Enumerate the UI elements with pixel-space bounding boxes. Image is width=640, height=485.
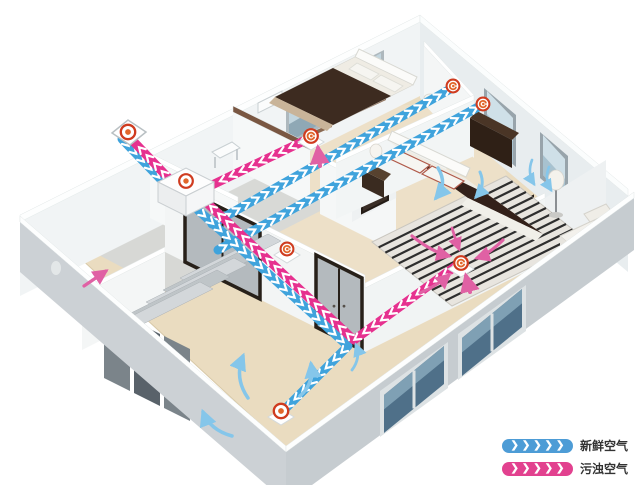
fresh-air-swatch: ❯❯❯❯❯: [502, 439, 573, 453]
legend-item-fresh-air: ❯❯❯❯❯ 新鲜空气: [502, 437, 628, 454]
exhaust-air-swatch: ❯❯❯❯❯: [502, 462, 573, 476]
hallway-exhaust-vent-icon: [281, 243, 294, 256]
bedroom1-supply-vent-icon: [447, 80, 460, 93]
legend: ❯❯❯❯❯ 新鲜空气 ❯❯❯❯❯ 污浊空气: [502, 437, 628, 477]
bulkhead-exhaust-vent-icon: [304, 129, 318, 143]
outdoor-intake-exhaust-vent-icon: [121, 125, 135, 139]
ventilation-diagram: ❯❯❯❯❯ 新鲜空气 ❯❯❯❯❯ 污浊空气: [0, 0, 640, 485]
exhaust-air-label: 污浊空气: [580, 460, 628, 477]
bedroom2-supply-vent-icon: [477, 98, 490, 111]
house-cutaway-illustration: [0, 0, 640, 485]
heat-recovery-unit-vent-icon: [179, 174, 193, 188]
legend-item-exhaust-air: ❯❯❯❯❯ 污浊空气: [502, 460, 628, 477]
fresh-air-label: 新鲜空气: [580, 437, 628, 454]
bedroom2-return-vent-icon: [454, 256, 468, 270]
livingroom-supply-vent-icon: [274, 404, 288, 418]
